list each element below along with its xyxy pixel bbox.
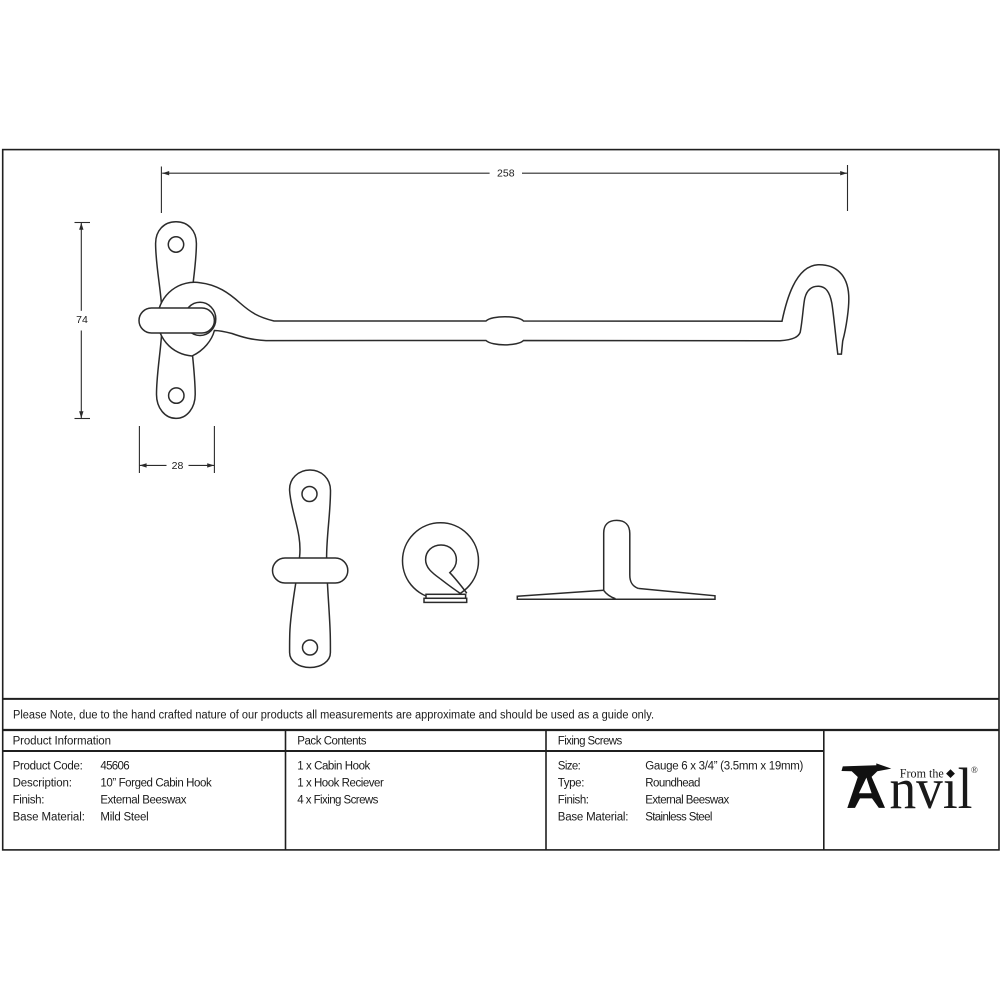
svg-text:Mild Steel: Mild Steel <box>100 812 148 824</box>
svg-text:Size:: Size: <box>558 761 581 773</box>
svg-text:10” Forged Cabin Hook: 10” Forged Cabin Hook <box>100 778 212 790</box>
svg-text:Product Information: Product Information <box>13 736 111 748</box>
svg-text:Finish:: Finish: <box>13 795 45 807</box>
svg-text:Base Material:: Base Material: <box>13 812 85 824</box>
svg-text:Type:: Type: <box>558 778 585 790</box>
svg-text:74: 74 <box>76 314 88 326</box>
svg-text:1 x Hook Reciever: 1 x Hook Reciever <box>297 778 384 790</box>
svg-text:®: ® <box>971 765 978 775</box>
svg-text:Finish:: Finish: <box>558 795 589 807</box>
svg-text:External Beeswax: External Beeswax <box>645 795 729 807</box>
svg-text:Fixing Screws: Fixing Screws <box>558 736 623 748</box>
svg-text:Gauge 6 x 3/4” (3.5mm x 19mm): Gauge 6 x 3/4” (3.5mm x 19mm) <box>645 761 803 773</box>
svg-text:45606: 45606 <box>100 761 129 773</box>
svg-text:Pack Contents: Pack Contents <box>297 736 366 748</box>
svg-text:From the: From the <box>900 766 944 781</box>
svg-text:4 x Fixing Screws: 4 x Fixing Screws <box>297 795 378 807</box>
svg-text:Stainless Steel: Stainless Steel <box>645 812 712 824</box>
svg-text:Base Material:: Base Material: <box>558 812 629 824</box>
svg-text:28: 28 <box>172 460 184 472</box>
svg-text:Roundhead: Roundhead <box>645 778 700 790</box>
svg-text:External Beeswax: External Beeswax <box>100 795 186 807</box>
svg-text:Please Note, due to the hand c: Please Note, due to the hand crafted nat… <box>13 710 654 722</box>
svg-text:1 x Cabin Hook: 1 x Cabin Hook <box>297 761 370 773</box>
svg-text:Description:: Description: <box>13 778 72 790</box>
svg-text:258: 258 <box>497 168 515 180</box>
svg-text:Product Code:: Product Code: <box>13 761 83 773</box>
